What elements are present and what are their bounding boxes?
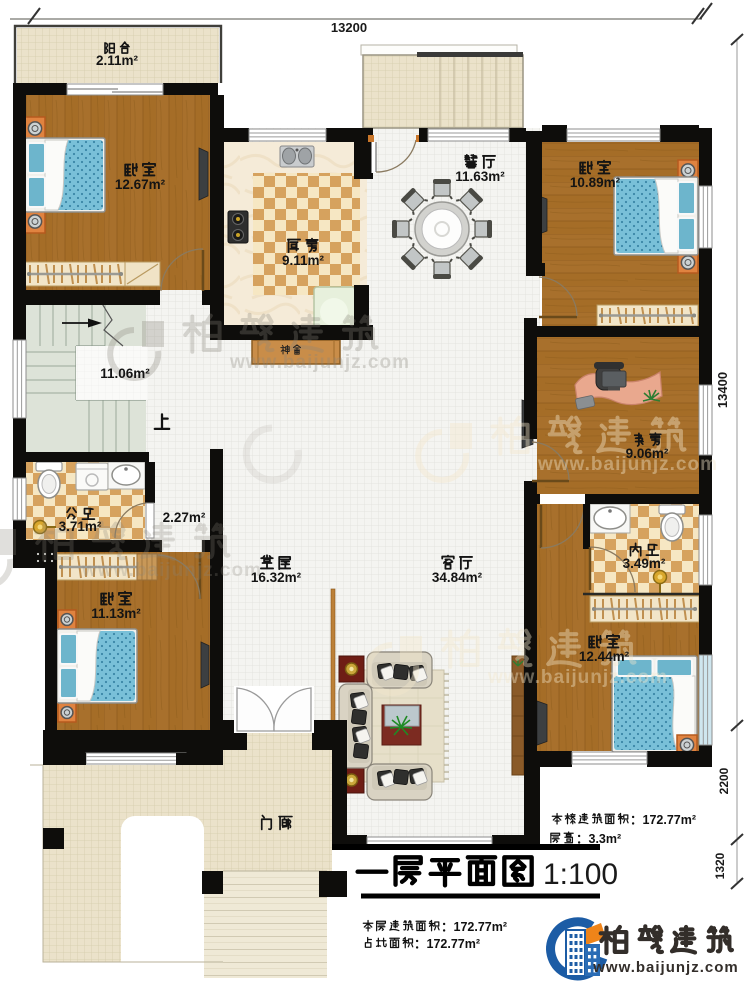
svg-text:11.63m²: 11.63m² xyxy=(455,169,505,184)
svg-text:11.13m²: 11.13m² xyxy=(91,606,141,621)
svg-text:：3.3m²: ：3.3m² xyxy=(576,832,621,846)
svg-text:2.27m²: 2.27m² xyxy=(163,510,206,525)
svg-text:2200: 2200 xyxy=(717,767,731,794)
svg-text:12.67m²: 12.67m² xyxy=(115,177,166,192)
svg-text:12.44m²: 12.44m² xyxy=(579,649,630,664)
svg-text:2.11m²: 2.11m² xyxy=(96,53,139,68)
svg-text:13400: 13400 xyxy=(715,372,730,408)
svg-text:16.32m²: 16.32m² xyxy=(251,570,302,585)
svg-text:www.baijunjz.com: www.baijunjz.com xyxy=(487,667,668,688)
svg-text:3.49m²: 3.49m² xyxy=(623,556,666,571)
svg-text:：172.77m²: ：172.77m² xyxy=(441,920,507,934)
svg-text:www.baijunjz.com: www.baijunjz.com xyxy=(81,560,262,581)
svg-text:1:100: 1:100 xyxy=(543,858,618,891)
svg-text:3.71m²: 3.71m² xyxy=(59,519,102,534)
svg-text:13200: 13200 xyxy=(331,20,367,35)
svg-text:9.11m²: 9.11m² xyxy=(282,253,325,268)
svg-text:1320: 1320 xyxy=(713,852,727,879)
svg-text:9.06m²: 9.06m² xyxy=(626,446,669,461)
svg-text:www.baijunjz.com: www.baijunjz.com xyxy=(229,352,410,373)
svg-text:34.84m²: 34.84m² xyxy=(432,570,483,585)
svg-text:10.89m²: 10.89m² xyxy=(570,175,621,190)
svg-text:www.baijunjz.com: www.baijunjz.com xyxy=(592,959,738,976)
svg-text:：172.77m²: ：172.77m² xyxy=(630,813,696,827)
svg-text:：172.77m²: ：172.77m² xyxy=(414,937,480,951)
svg-text:11.06m²: 11.06m² xyxy=(100,366,150,381)
